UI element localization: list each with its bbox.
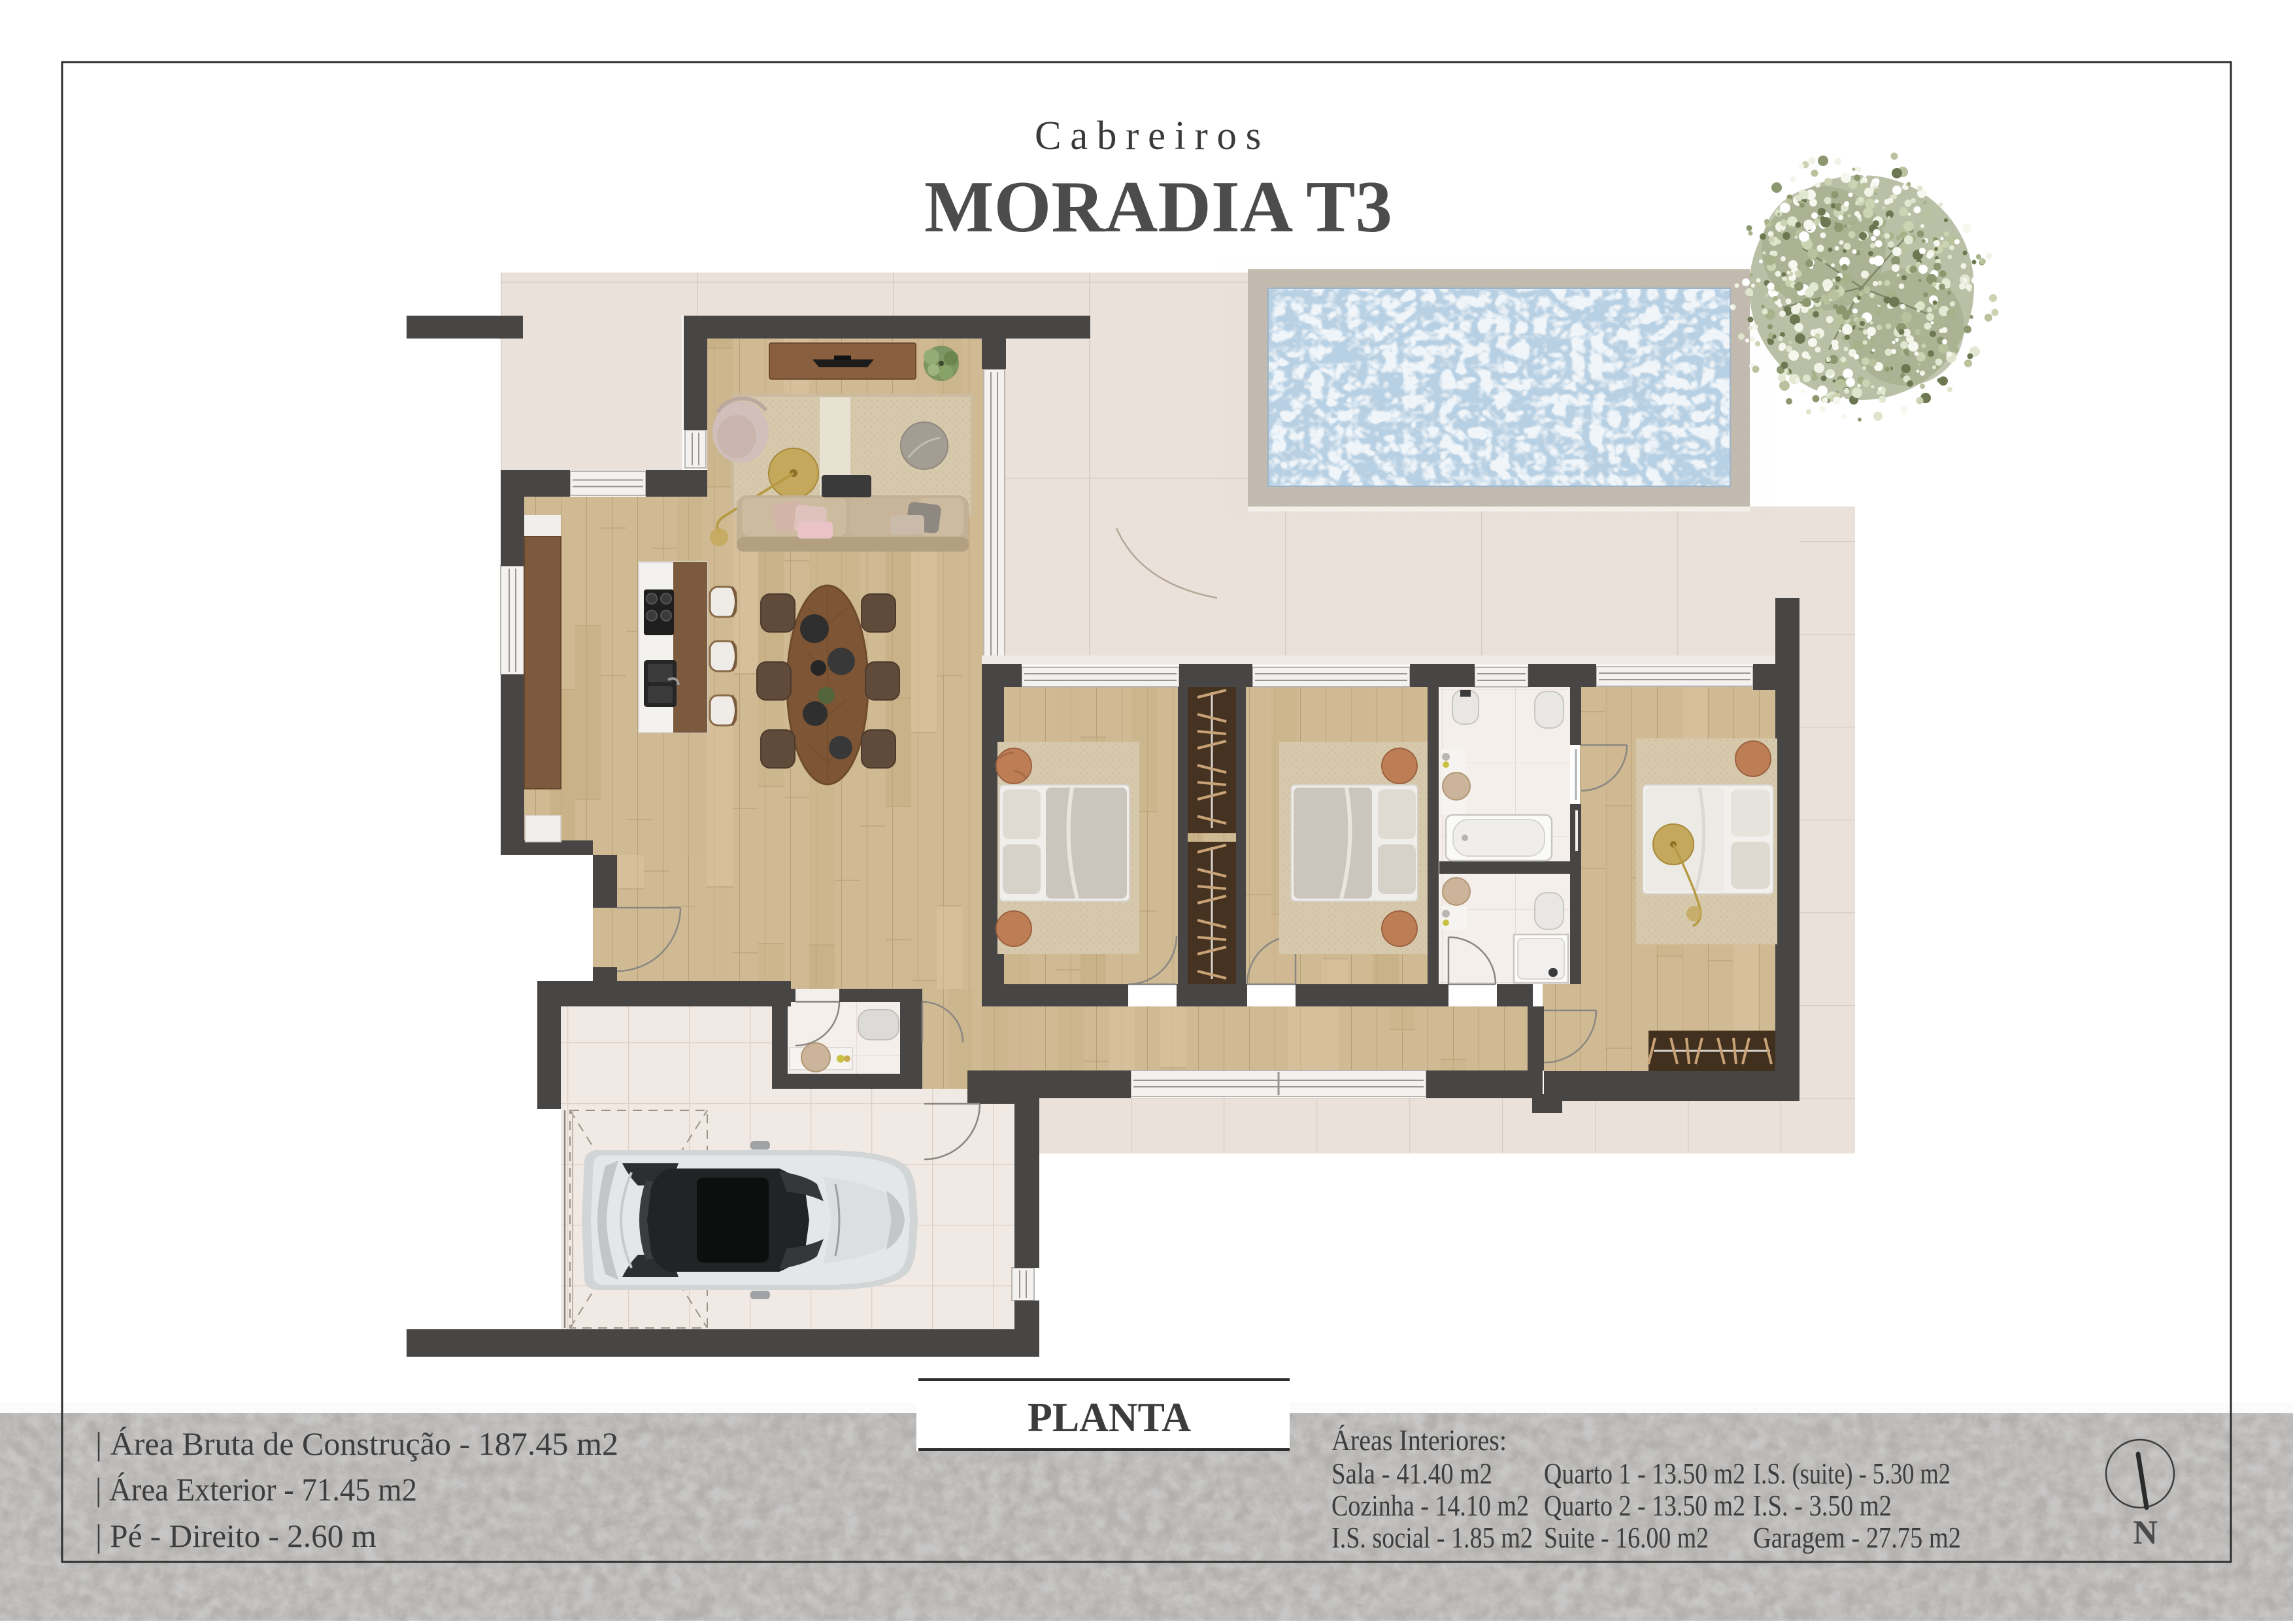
svg-text:Garagem - 27.75 m2: Garagem - 27.75 m2: [1753, 1521, 1961, 1554]
svg-text:PLANTA: PLANTA: [1028, 1394, 1191, 1440]
svg-text:Cozinha - 14.10 m2: Cozinha - 14.10 m2: [1331, 1489, 1529, 1522]
svg-text:N: N: [2133, 1514, 2158, 1551]
svg-text:I.S. (suite) - 5.30 m2: I.S. (suite) - 5.30 m2: [1753, 1457, 1950, 1490]
svg-text:| Área Bruta de Construção -: | Área Bruta de Construção - 187.45 m2: [95, 1425, 618, 1462]
svg-text:Sala - 41.40 m2: Sala - 41.40 m2: [1331, 1457, 1492, 1490]
svg-text:Quarto 2 - 13.50 m2: Quarto 2 - 13.50 m2: [1544, 1489, 1745, 1522]
svg-text:Áreas Interiores:: Áreas Interiores:: [1331, 1423, 1507, 1457]
svg-text:| Área Exterior - 71.45 m2: | Área Exterior - 71.45 m2: [95, 1471, 417, 1508]
svg-text:| Pé - Direito - 2.60 m: | Pé - Direito - 2.60 m: [95, 1517, 377, 1554]
svg-text:I.S. social - 1.85 m2: I.S. social - 1.85 m2: [1331, 1521, 1533, 1554]
svg-text:Quarto 1 - 13.50 m2: Quarto 1 - 13.50 m2: [1544, 1457, 1745, 1490]
svg-text:Cabreiros: Cabreiros: [1035, 114, 1270, 158]
svg-text:Suite - 16.00 m2: Suite - 16.00 m2: [1544, 1521, 1709, 1554]
svg-text:MORADIA T3: MORADIA T3: [924, 167, 1392, 248]
svg-text:I.S. - 3.50 m2: I.S. - 3.50 m2: [1753, 1489, 1892, 1522]
